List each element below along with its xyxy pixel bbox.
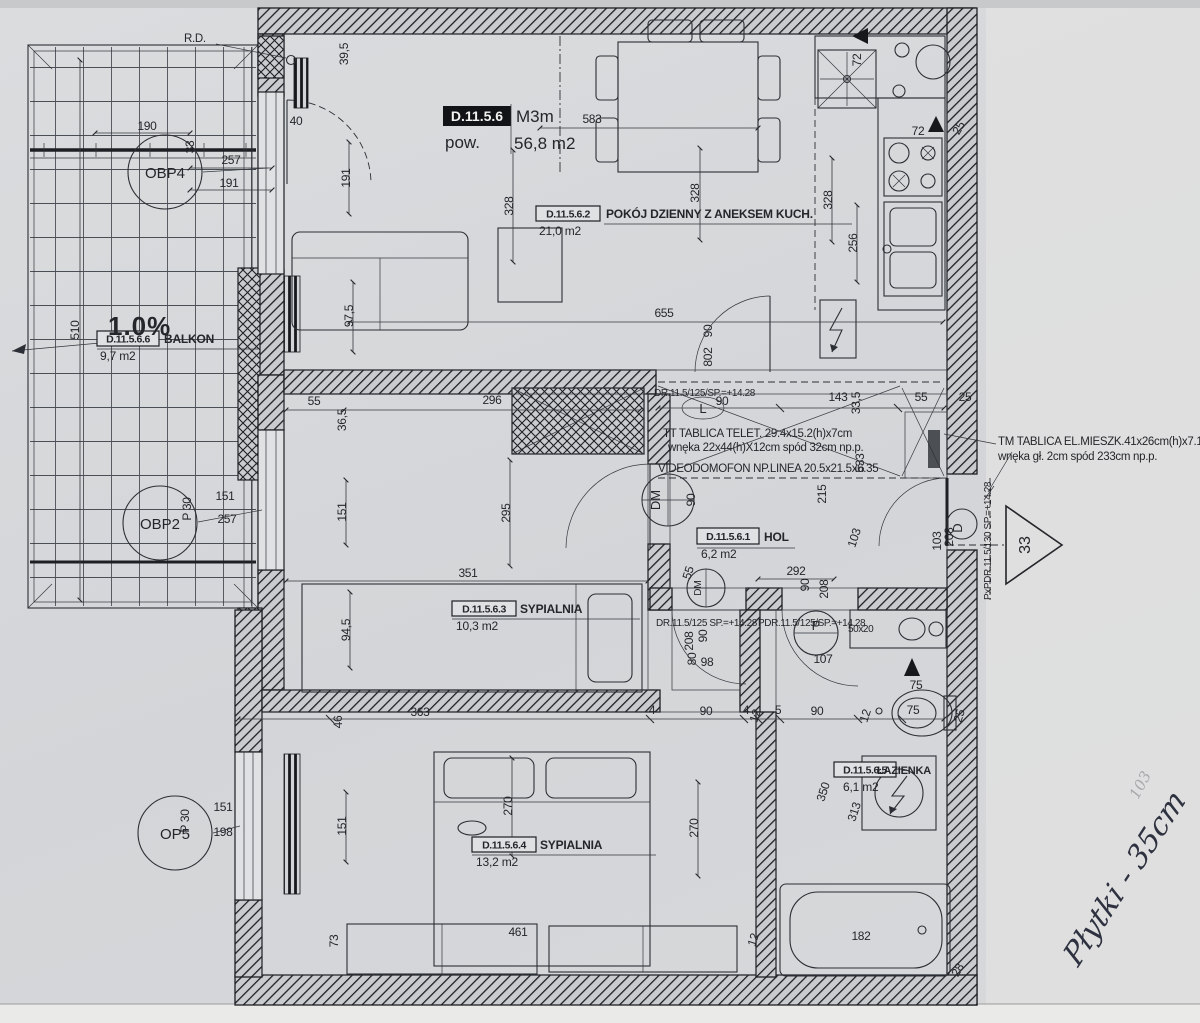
room-name: BALKON (164, 332, 214, 346)
marker-op5: OP5 (138, 796, 212, 870)
kitchen (815, 28, 950, 310)
dimension-label: 270 (687, 818, 701, 838)
room-area: 21,0 m2 (539, 224, 581, 238)
dimension-label: 90 (700, 704, 713, 718)
tt-note-1: TT TABLICA TELET. 29.4x15.2(h)x7cm (663, 428, 852, 440)
room-label-bedroom2: D.11.5.6.4 SYPIALNIA 13,2 m2 (472, 837, 656, 869)
dimension-label: 103 (845, 526, 864, 549)
dimension-label: 191 (339, 168, 353, 188)
dimension-label: 90 (696, 629, 710, 642)
room-code: D.11.5.6.2 (546, 209, 590, 221)
room-name: POKÓJ DZIENNY Z ANEKSEM KUCH. (606, 206, 813, 221)
dimension-label: 55 (680, 564, 697, 581)
arrow-up-icon (928, 116, 944, 132)
dimension-label: P 30 (180, 497, 194, 521)
construction-lines (560, 36, 1012, 600)
dimension-label: 257 (217, 512, 237, 526)
marker-obp2-label: OBP2 (140, 516, 180, 533)
dimension-label: 583 (582, 112, 602, 126)
electrical-panel (820, 300, 856, 358)
dimension-label: 90 (798, 578, 812, 591)
dimension-label: 295 (499, 503, 513, 523)
pdr-note: PxPDR.11.5/130 SP.=+14.28 (983, 481, 994, 600)
dimension-label: 90 (701, 324, 715, 337)
paper-bottom-edge (0, 1004, 1200, 1023)
dimension-label: 75 (907, 703, 920, 717)
arrow-up-icon (904, 658, 920, 676)
dimension-label: 208 (817, 579, 831, 599)
dimension-label: 107 (813, 652, 833, 666)
marker-p-label: P (812, 618, 821, 633)
dimension-label: 98 (701, 655, 714, 669)
dimension-label: 97,5 (342, 304, 356, 327)
videophone-note: VIDEODOMOFON NP.LINEA 20.5x21.5x6.35 (658, 463, 878, 475)
paper-top-edge (0, 0, 1200, 8)
tm-note-1: TM TABLICA EL.MIESZK.41x26cm(h)x7.1cm (998, 436, 1200, 448)
dimension-label: 256 (846, 233, 860, 253)
room-area: 6,2 m2 (701, 547, 737, 561)
dimension-label: 4 (649, 703, 656, 717)
dimension-label: 90 (716, 394, 729, 408)
room-area: 10,3 m2 (456, 619, 498, 633)
tm-note-2: wnęka gł. 2cm spód 233cm np.p. (997, 451, 1157, 463)
dimension-label: 208 (682, 631, 696, 651)
dimension-label: 25 (959, 390, 972, 404)
dimension-label: 292 (786, 564, 806, 578)
dimension-label: 351 (458, 566, 478, 580)
dimension-label: 151 (335, 816, 349, 836)
dimension-label: 182 (851, 929, 871, 943)
dimension-label: 143 (828, 390, 848, 404)
dimension-label: 80 (685, 652, 699, 665)
triangle-33-label: 33 (1017, 536, 1034, 554)
dimension-label: 90 (684, 493, 698, 506)
dimension-label: 151 (335, 502, 349, 522)
room-area: 9,7 m2 (100, 349, 136, 363)
room-name: SYPIALNIA (520, 602, 583, 616)
marker-dm1-label: DM (648, 490, 663, 510)
dr-note: DR.11.5/125 SP.=+14.28 (656, 618, 758, 629)
dimension-label: 363 (410, 705, 430, 719)
rd-label: R.D. (184, 33, 206, 45)
dimension-label: 5 (775, 703, 782, 717)
dimension-label: 296 (482, 393, 502, 407)
room-code: D.11.5.6.1 (706, 531, 750, 543)
tt-note-2: wnęka 22x44(h)X12cm spód 32cm np.p. (667, 442, 863, 454)
room-label-bedroom1: D.11.5.6.3 SYPIALNIA 10,3 m2 (452, 601, 640, 633)
bed-single (302, 584, 642, 692)
dimension-label: 33,5 (849, 391, 863, 414)
marker-p: P (794, 611, 838, 655)
unit-type: M3m (516, 107, 554, 126)
dimension-label: 151 (213, 800, 233, 814)
unit-area: 56,8 m2 (514, 134, 575, 153)
area-label: pow. (445, 133, 480, 152)
marker-l-label: L (699, 401, 706, 416)
room-outlines (262, 34, 947, 975)
paper-right-margin (986, 0, 1200, 1023)
dimension-label: 802 (701, 347, 715, 367)
dimension-label: 328 (502, 196, 516, 216)
dimension-label: 313 (845, 800, 864, 823)
room-name: HOL (764, 530, 789, 544)
balcony-door-window (258, 92, 371, 274)
dimension-label: 75 (910, 678, 923, 692)
room-name: ŁAZIENKA (877, 765, 931, 777)
dimension-label: 90 (811, 704, 824, 718)
dimension-label: 270 (501, 796, 515, 816)
room-area: 13,2 m2 (476, 855, 518, 869)
dimension-label: 328 (688, 183, 702, 203)
door-arc-bedroom1 (566, 464, 650, 548)
room-name: SYPIALNIA (540, 838, 603, 852)
dimension-label: 12 (857, 707, 874, 724)
cooktop-star-icon (818, 50, 876, 108)
room-label-bathroom: D.11.5.6.5 ŁAZIENKA 6,1 m2 (834, 762, 931, 794)
door-arc (287, 100, 371, 184)
dimension-label: 208 (942, 527, 956, 547)
dimension-label: 257 (221, 153, 241, 167)
dimension-label: 350 (814, 780, 833, 803)
dimension-label: 36,5 (335, 408, 349, 431)
niche-size: 50x20 (848, 624, 874, 635)
room-code: D.11.5.6.4 (482, 840, 526, 852)
dimension-label: 33 (183, 140, 197, 153)
dimension-label: 55 (915, 390, 928, 404)
marker-dm2-label: DM (693, 580, 704, 596)
floor-plan-scan: D.11.5.6 M3m pow. 56,8 m2 D.11.5.6.2 POK… (0, 0, 1200, 1023)
dimension-label: 72 (912, 124, 925, 138)
dimension-label: 40 (290, 114, 303, 128)
marker-obp4-label: OBP4 (145, 165, 185, 182)
slope-label: 1.0% (108, 311, 171, 341)
dimension-label: 328 (821, 190, 835, 210)
room-code: D.11.5.6.3 (462, 604, 506, 616)
unit-code: D.11.5.6 (451, 108, 503, 124)
floor-plan-drawing: D.11.5.6 M3m pow. 56,8 m2 D.11.5.6.2 POK… (0, 0, 1200, 1023)
dimension-label: 198 (213, 825, 233, 839)
hob-icon (884, 138, 942, 196)
dimension-label: 55 (308, 394, 321, 408)
title-block: D.11.5.6 M3m pow. 56,8 m2 (443, 104, 575, 154)
dimension-label: 191 (219, 176, 239, 190)
dimension-label: 533 (853, 453, 867, 473)
dimension-label: 73 (327, 934, 341, 947)
dimension-label: 190 (137, 119, 157, 133)
room-area: 6,1 m2 (843, 780, 879, 794)
kitchen-sink-icon (883, 202, 942, 296)
room-label-living: D.11.5.6.2 POKÓJ DZIENNY Z ANEKSEM KUCH.… (536, 206, 852, 238)
dining-table (596, 20, 780, 172)
dimension-label: 46 (331, 715, 345, 728)
radiators (284, 58, 308, 894)
window-obp2 (258, 430, 284, 570)
dimension-label: 655 (654, 306, 674, 320)
dimension-label: 215 (815, 484, 829, 504)
dimension-label: 39,5 (337, 42, 351, 65)
dimension-label: P 30 (178, 809, 192, 833)
dimension-label: 151 (215, 489, 235, 503)
sofa (292, 228, 562, 330)
bed-double (434, 752, 650, 966)
dimension-label: 94,5 (339, 618, 353, 641)
dimension-label: 72 (850, 53, 864, 66)
dimension-label: 510 (68, 320, 82, 340)
room-label-hol: D.11.5.6.1 HOL 6,2 m2 (697, 528, 795, 561)
dimension-label: 461 (508, 925, 528, 939)
